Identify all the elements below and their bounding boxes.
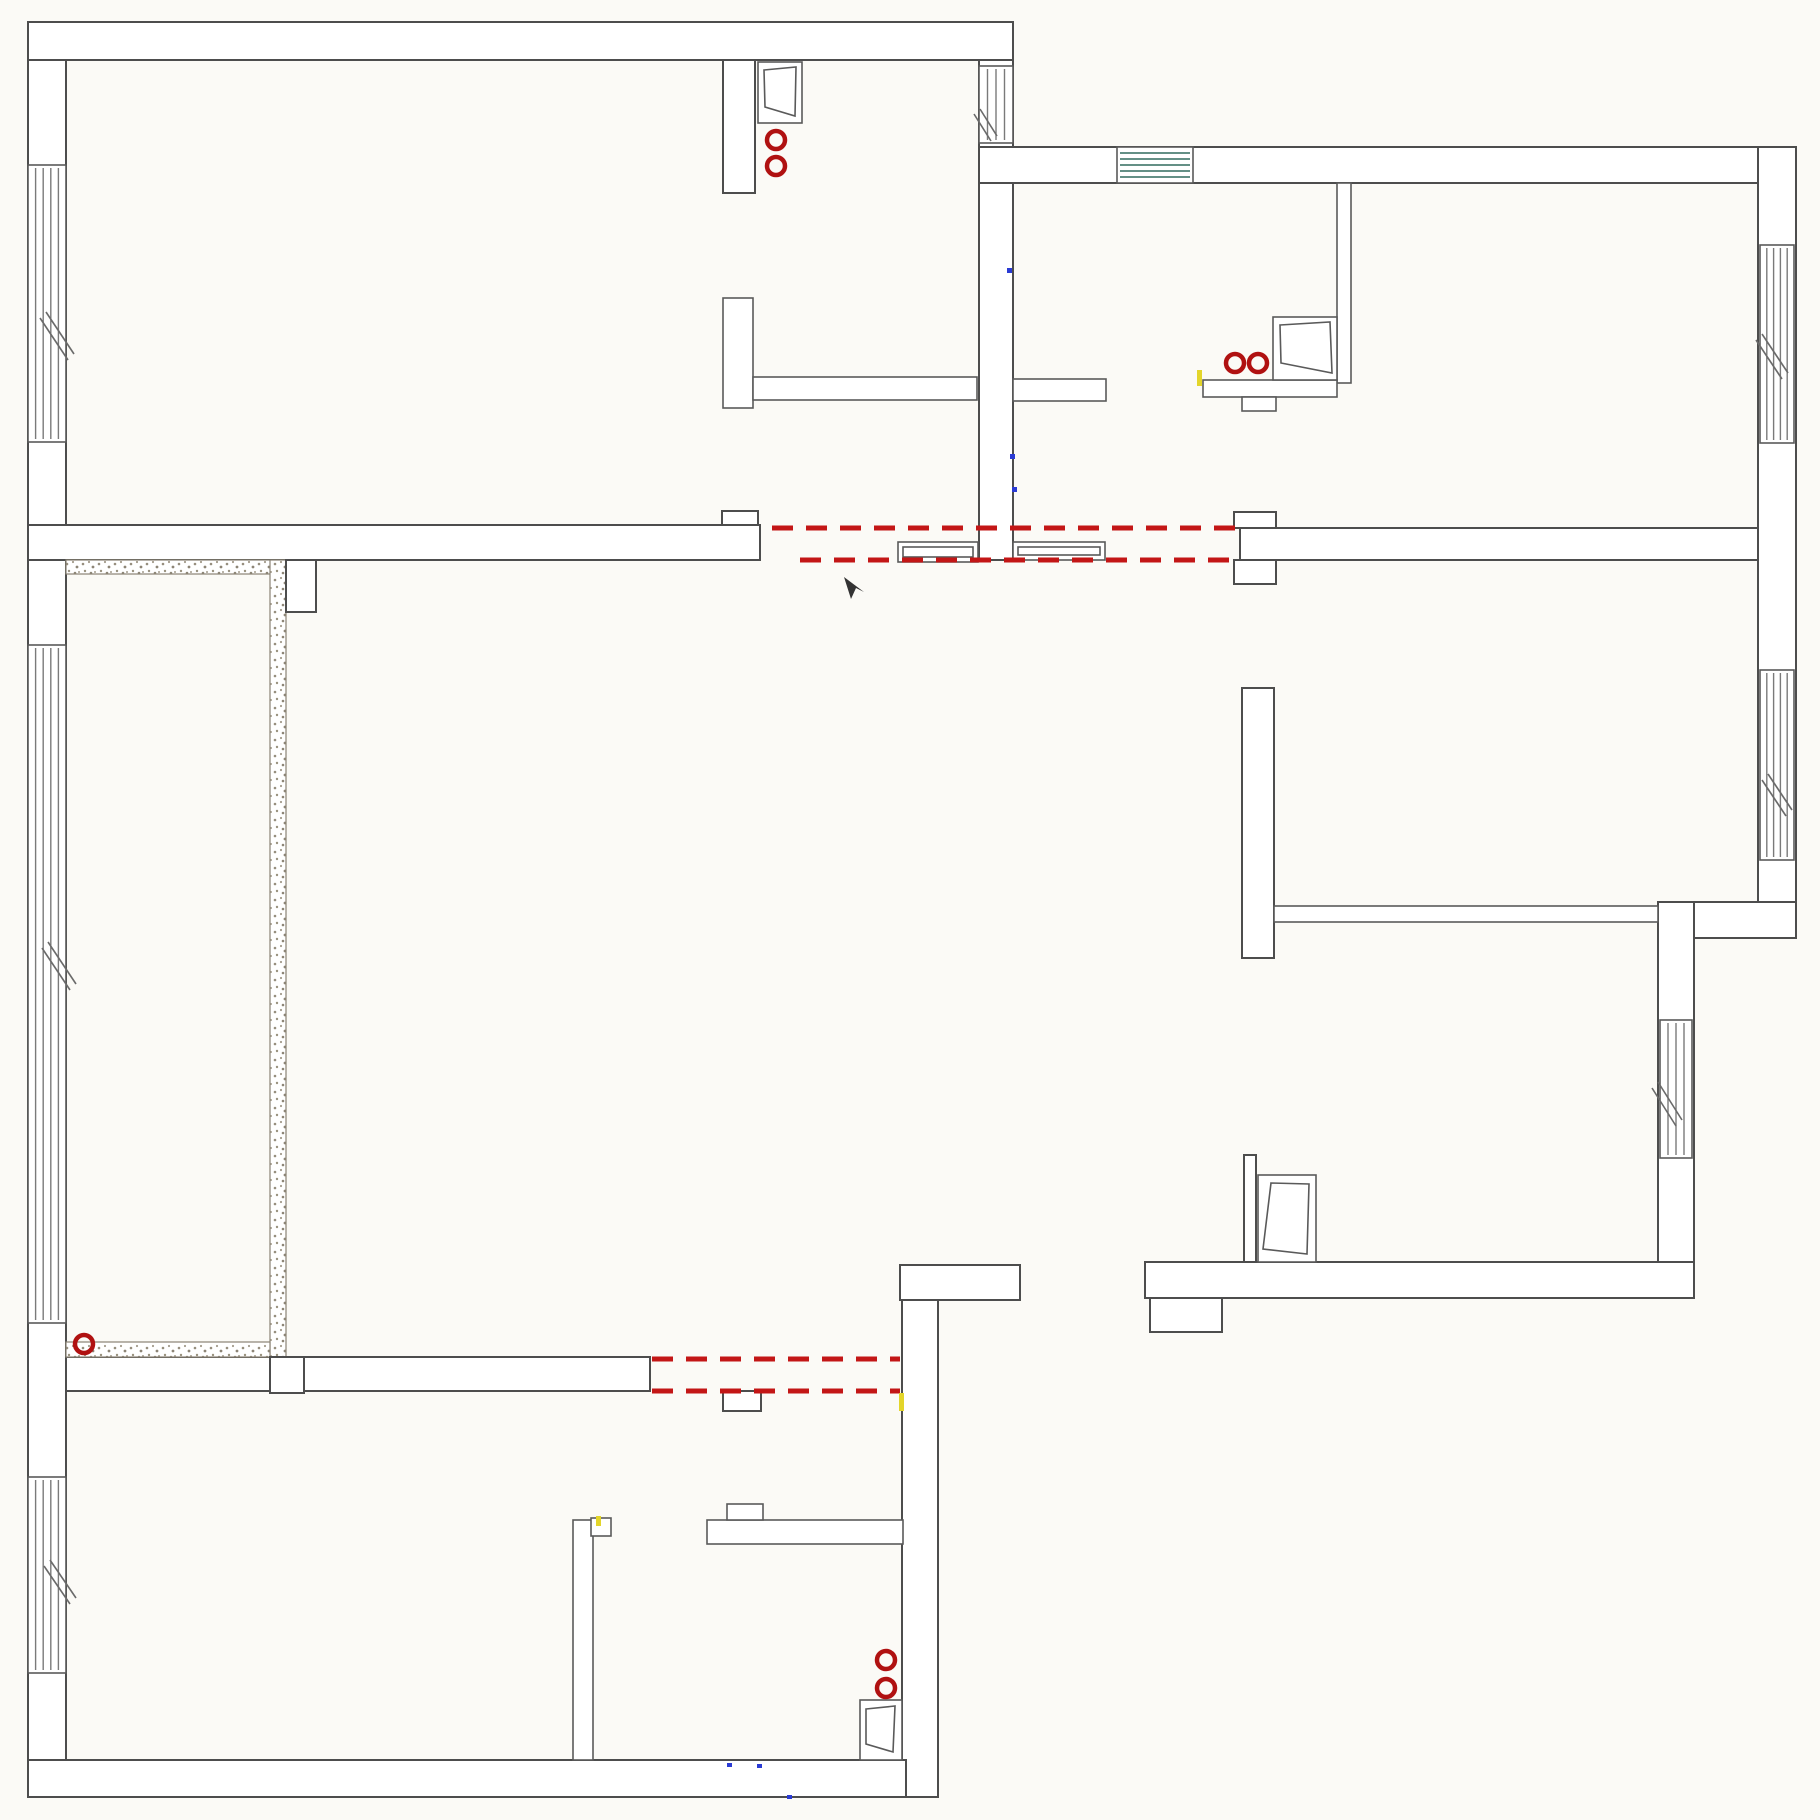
bath2-wall-horizontal	[707, 1520, 903, 1544]
balcony-wall-east	[270, 560, 286, 1357]
mark-blue-bottom-3	[787, 1795, 792, 1799]
outlet-kitchen-2	[1249, 354, 1267, 372]
study-south-wall	[1274, 906, 1658, 922]
floor-plan	[0, 0, 1820, 1820]
niche-divider-wall	[723, 60, 755, 193]
window-west-balcony	[28, 645, 66, 1323]
pocket-door-panel-east-inner	[1018, 547, 1100, 555]
hall-door-jamb	[723, 1391, 761, 1411]
bedroom-south-wall	[1240, 528, 1758, 560]
closet-rail-east	[1013, 379, 1106, 401]
balcony-wall-south	[66, 1342, 270, 1357]
kitchen-counter-notch	[1242, 397, 1276, 411]
window-east-2	[1760, 670, 1794, 860]
outlet-kitchen-1	[1226, 354, 1244, 372]
kitchen-counter	[1203, 380, 1337, 397]
bottom-exterior-wall	[28, 1760, 906, 1797]
window-west-1	[28, 165, 66, 442]
study-west-wall	[1242, 688, 1274, 958]
balcony-column	[286, 560, 316, 612]
window-east-1	[1760, 245, 1794, 443]
center-wall-bar	[900, 1265, 1020, 1300]
pointer-arrow	[844, 577, 864, 599]
mark-yellow-center-wall	[899, 1393, 904, 1411]
casement-window-bottom-left-sash	[866, 1706, 895, 1752]
mark-blue-bottom-2	[757, 1764, 762, 1768]
pocket-door-panel-west-inner	[903, 547, 973, 557]
mark-blue-corridor-1	[1007, 268, 1012, 273]
outlet-niche-2	[767, 157, 785, 175]
closet-wall-vertical	[723, 298, 753, 408]
casement-window-bath-sash	[1263, 1183, 1309, 1254]
balcony-door-jamb	[270, 1357, 304, 1393]
bedroom-door-jamb-lower	[1234, 560, 1276, 584]
top-exterior-wall-west	[28, 22, 1013, 60]
mark-yellow-bath2	[596, 1516, 601, 1526]
top-left-door-jamb	[722, 511, 758, 525]
bottom-right-room-pilaster	[1150, 1298, 1222, 1332]
top-left-room-south-wall	[28, 525, 760, 560]
center-wall-vertical	[902, 1300, 938, 1797]
mark-blue-bottom-1	[727, 1763, 732, 1767]
balcony-wall-north	[66, 560, 286, 574]
floor-plan-svg	[0, 0, 1820, 1820]
outlet-niche-1	[767, 131, 785, 149]
closet-rail-west	[753, 377, 977, 400]
mark-blue-corridor-2	[1010, 454, 1015, 459]
outlet-bottom-left-1	[877, 1651, 895, 1669]
outlet-bottom-left-2	[877, 1679, 895, 1697]
bottom-right-room-south-wall	[1145, 1262, 1694, 1298]
mark-blue-corridor-3	[1012, 487, 1017, 492]
kitchen-partition-wall	[1337, 183, 1351, 383]
mark-yellow-kitchen	[1197, 370, 1202, 386]
hall-south-wall	[66, 1357, 650, 1391]
bath2-wall-horizontal-notch	[727, 1504, 763, 1520]
casement-window-niche-sash	[764, 67, 796, 116]
bath-partition-wall	[1244, 1155, 1256, 1262]
top-exterior-wall-east	[979, 147, 1796, 183]
bath2-wall-vertical	[573, 1520, 593, 1760]
bedroom-door-jamb-upper	[1234, 512, 1276, 528]
